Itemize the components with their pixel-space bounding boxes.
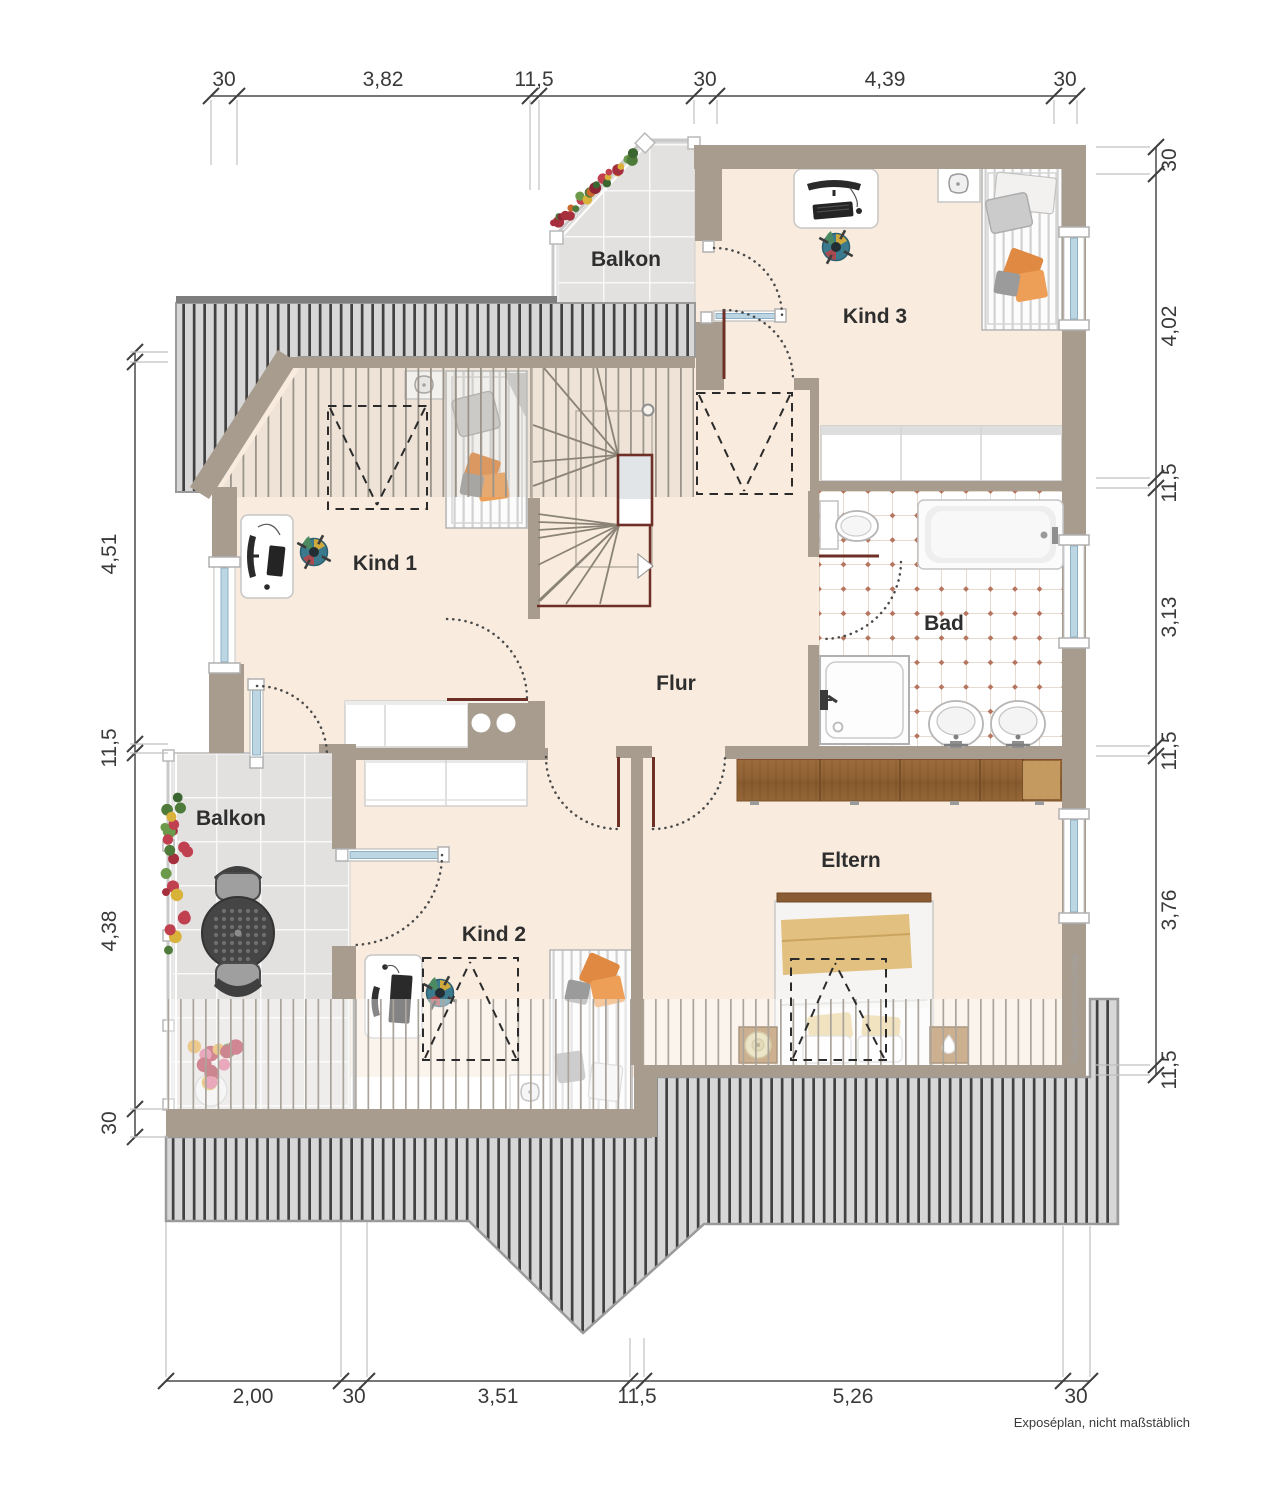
svg-text:11,5: 11,5 — [98, 728, 121, 767]
svg-text:2,00: 2,00 — [233, 1385, 274, 1408]
svg-text:Bad: Bad — [924, 612, 964, 635]
svg-text:5,26: 5,26 — [833, 1385, 874, 1408]
svg-text:Kind 2: Kind 2 — [462, 923, 526, 946]
svg-text:4,51: 4,51 — [98, 534, 121, 575]
svg-text:3,13: 3,13 — [1158, 597, 1181, 638]
svg-text:30: 30 — [693, 68, 716, 91]
svg-text:4,02: 4,02 — [1158, 306, 1181, 347]
svg-text:3,76: 3,76 — [1158, 890, 1181, 931]
svg-text:30: 30 — [1158, 148, 1181, 171]
svg-text:11,5: 11,5 — [1158, 463, 1181, 502]
svg-text:11,5: 11,5 — [1158, 1050, 1181, 1089]
svg-text:3,82: 3,82 — [363, 68, 404, 91]
svg-text:Balkon: Balkon — [196, 807, 266, 830]
svg-text:Flur: Flur — [656, 672, 696, 695]
svg-text:Kind 1: Kind 1 — [353, 552, 417, 575]
svg-text:Exposéplan, nicht maßstäblich: Exposéplan, nicht maßstäblich — [1014, 1415, 1190, 1430]
svg-text:Eltern: Eltern — [821, 849, 881, 872]
svg-text:30: 30 — [342, 1385, 365, 1408]
svg-text:illustration©ImmoGrafik: illustration©ImmoGrafik — [1069, 953, 1081, 1063]
svg-text:3,51: 3,51 — [478, 1385, 519, 1408]
svg-text:Kind 3: Kind 3 — [843, 305, 907, 328]
svg-text:30: 30 — [1064, 1385, 1087, 1408]
svg-text:30: 30 — [212, 68, 235, 91]
svg-text:30: 30 — [1053, 68, 1076, 91]
svg-text:Balkon: Balkon — [591, 248, 661, 271]
svg-text:4,38: 4,38 — [98, 911, 121, 952]
svg-text:11,5: 11,5 — [617, 1385, 656, 1408]
svg-text:11,5: 11,5 — [1158, 731, 1181, 770]
svg-text:4,39: 4,39 — [865, 68, 906, 91]
svg-text:11,5: 11,5 — [514, 68, 553, 91]
svg-text:30: 30 — [98, 1111, 121, 1134]
